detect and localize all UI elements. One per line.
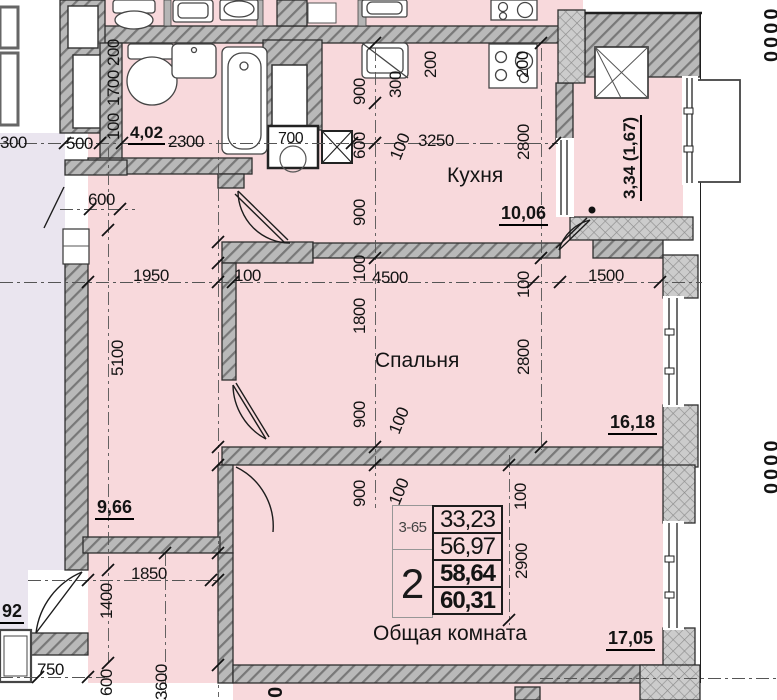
stamp-areas-column: 33,23 56,97 58,64 60,31 [432,505,503,615]
bathroom-area-label: 4,02 [128,124,165,145]
bedroom-area-label: 16,18 [608,413,657,435]
dim-100-v7: 100 [512,483,529,510]
dim-300: 300 [0,134,27,151]
dim-1400-v: 1400 [98,583,115,619]
living-room-label: Общая комната [373,623,527,644]
dim-2900-v: 2900 [513,543,530,579]
dim-100-v1: 100 [105,113,122,140]
dim-200-v2: 200 [422,51,439,78]
dim-2800-v2: 2800 [515,339,532,375]
stamp-left-column: 3-65 2 [392,505,433,618]
neighbor-area-label: 92 [0,602,24,624]
dim-100-h: 100 [234,267,261,284]
dim-200-v1: 200 [105,39,122,66]
kitchen-area-label: 10,06 [499,204,548,226]
dim-600-top: 600 [88,191,115,208]
dim-2800-v1: 2800 [515,124,532,160]
dim-2300: 2300 [168,133,204,150]
dim-750: 750 [37,661,64,678]
dim-1800-v: 1800 [351,298,368,334]
dim-100-v5: 100 [515,271,532,298]
dim-900-v3: 900 [351,401,368,428]
dim-4500: 4500 [372,269,408,286]
dim-200-v3: 200 [514,51,531,78]
dim-1700-v: 1700 [105,70,122,106]
dim-5100-v: 5100 [109,340,126,376]
dim-100-v3: 100 [351,255,368,282]
stamp-area-4: 60,31 [432,586,503,615]
floor-plan: 300 500 4,02 2300 700 3250 Кухня 10,06 6… [0,0,777,700]
dim-300-v: 300 [387,71,404,98]
unit-number: 3-65 [393,506,432,550]
room-count: 2 [393,550,432,618]
edge-marks-bottom: 00 [266,684,286,700]
dim-500: 500 [66,135,93,152]
living-area-label: 17,05 [606,629,655,651]
dim-900-v1: 900 [351,78,368,105]
hall-area-label: 9,66 [95,498,134,520]
edge-marks-top: 0000 [762,6,777,63]
dim-900-v2: 900 [351,199,368,226]
dim-1500: 1500 [588,267,624,284]
stamp-area-2: 56,97 [432,532,503,561]
dim-1850: 1850 [131,565,167,582]
kitchen-label: Кухня [447,165,503,186]
dim-600-v1: 600 [351,132,368,159]
dim-3600-v: 3600 [153,664,170,700]
balcony-area-label: 3,34 (1,67) [621,115,642,201]
dim-3250: 3250 [418,132,454,149]
dim-600-v2: 600 [98,669,115,696]
dim-900-v4: 900 [351,480,368,507]
dim-1950: 1950 [133,267,169,284]
bedroom-label: Спальня [375,350,459,371]
shaft-label: 700 [278,131,303,147]
edge-marks-mid: 0000 [762,438,777,495]
stamp-area-1: 33,23 [432,505,503,534]
stamp-area-3: 58,64 [432,559,503,588]
